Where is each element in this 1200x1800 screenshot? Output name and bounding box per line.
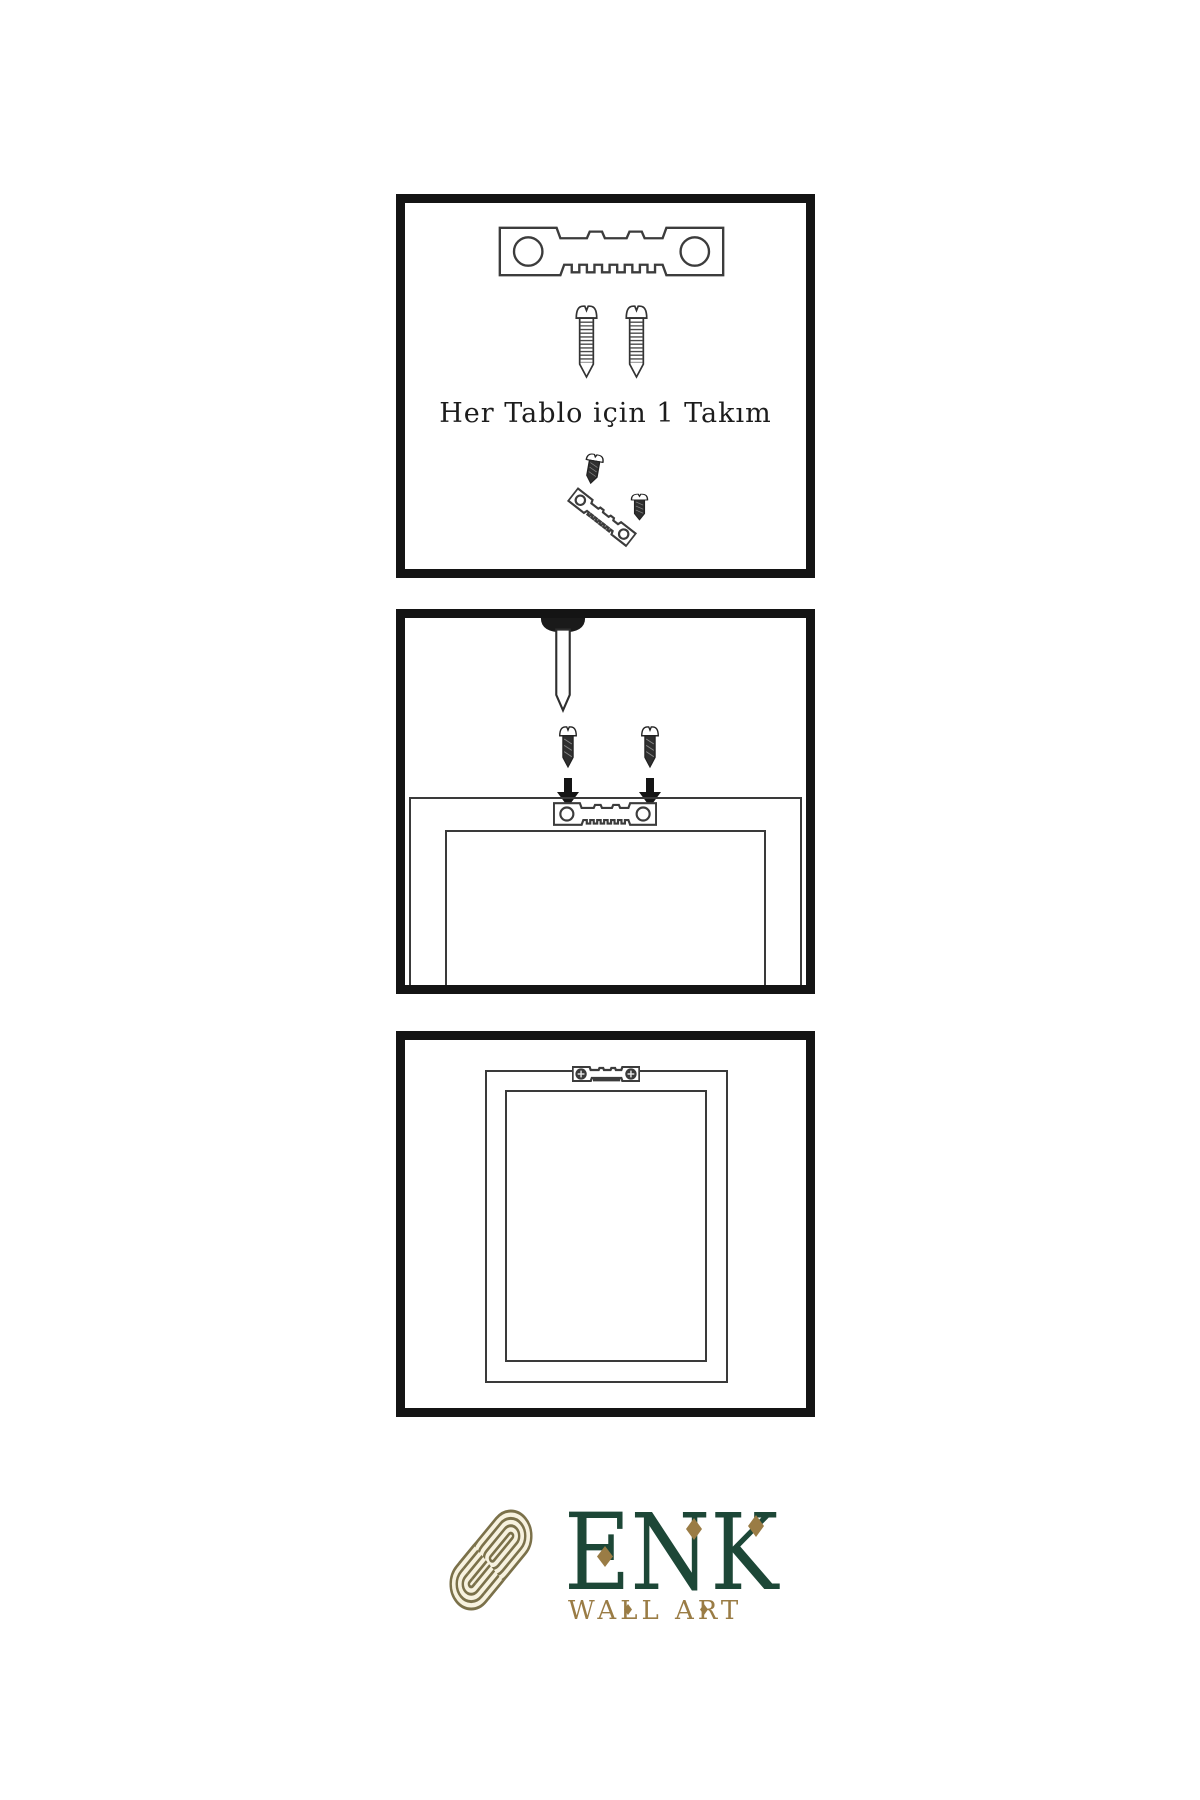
picture-frame-back-inner	[505, 1090, 707, 1362]
screw-icon	[572, 302, 601, 382]
screw-icon	[622, 302, 651, 382]
tilted-sawtooth-hanger-icon	[567, 487, 637, 547]
knot-logo-icon	[435, 1492, 547, 1628]
screw-icon	[556, 725, 580, 772]
brand-name: ENK	[564, 1500, 778, 1606]
screw-head-icon	[625, 1068, 636, 1079]
panel-mounting-diagram	[396, 609, 815, 994]
picture-frame-back-inner	[445, 830, 766, 991]
screw-head-icon	[575, 1068, 586, 1079]
mounted-sawtooth-hanger-icon	[572, 1066, 640, 1082]
sawtooth-hanger-icon	[495, 225, 728, 278]
kit-caption: Her Tablo için 1 Takım	[405, 398, 806, 429]
sawtooth-hanger-icon	[553, 801, 657, 827]
hanger-with-screws-group	[575, 451, 665, 561]
nail-icon	[537, 618, 589, 718]
screw-icon	[579, 451, 607, 488]
screw-icon	[629, 493, 650, 523]
instruction-sheet: Her Tablo için 1 Takım	[0, 0, 1200, 1800]
screw-icon	[638, 725, 662, 772]
panel-hung-frame	[396, 1031, 815, 1417]
brand-subtitle: WALL ART	[568, 1596, 742, 1626]
panel-hardware-kit: Her Tablo için 1 Takım	[396, 194, 815, 578]
